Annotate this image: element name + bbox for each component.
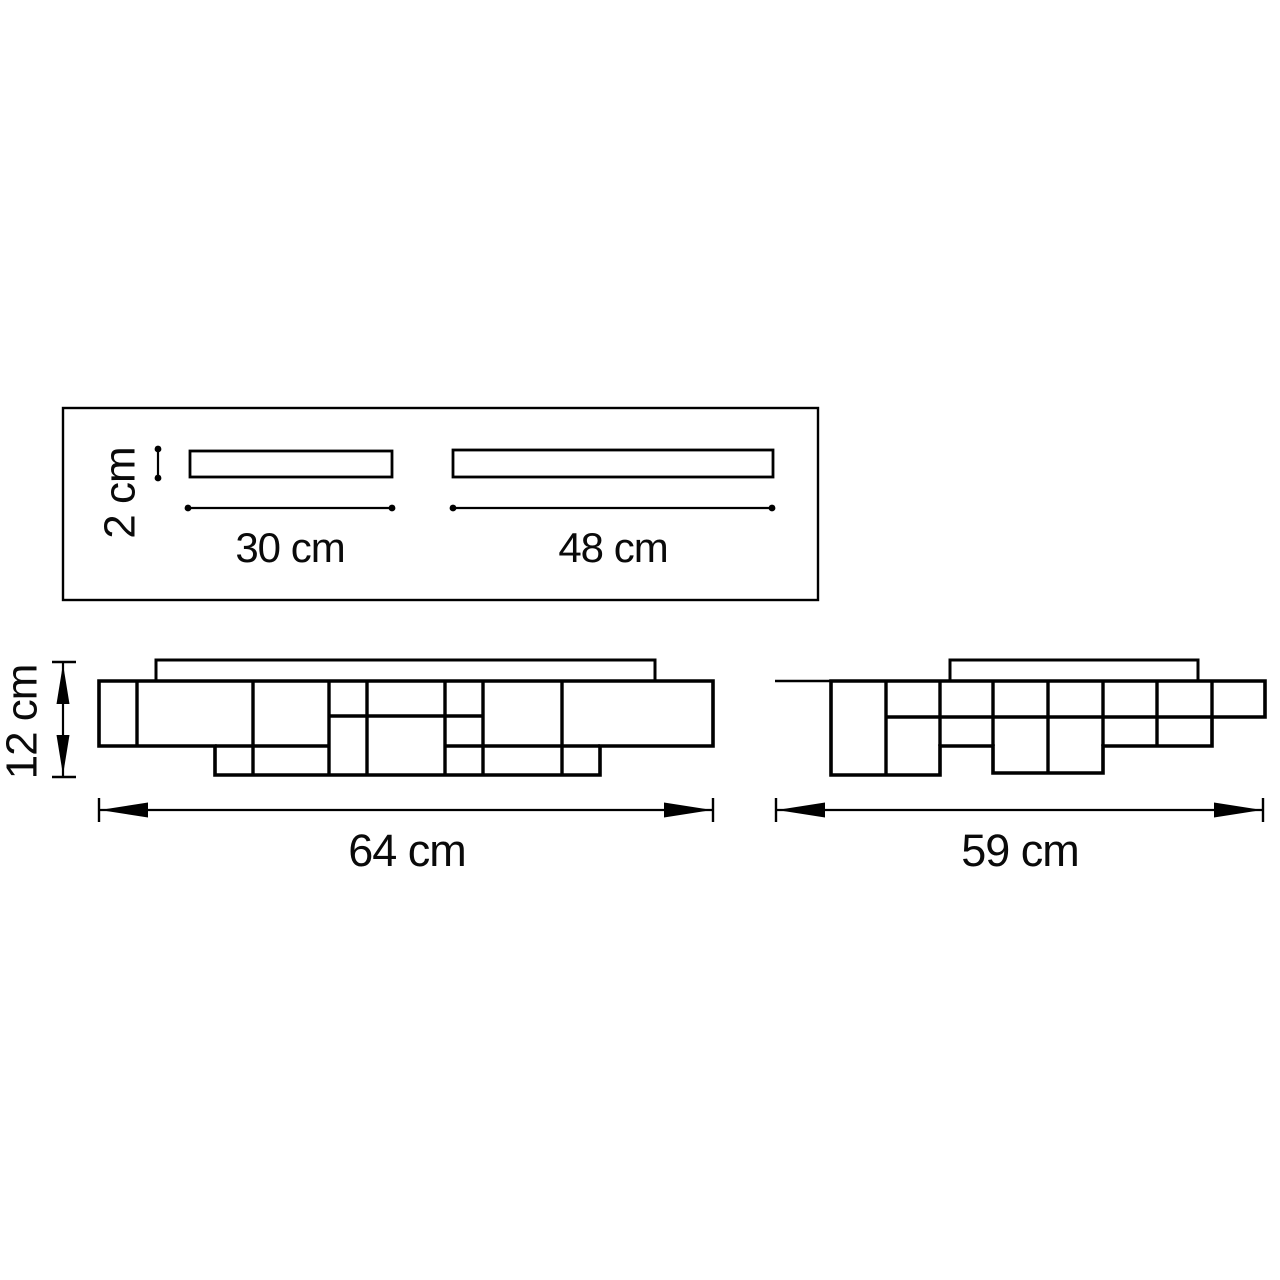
side-width-arrow-right bbox=[1214, 803, 1262, 818]
height-dim-arrow-up bbox=[57, 664, 70, 704]
tube-thickness-label: 2 cm bbox=[96, 447, 145, 538]
side-canopy-plate bbox=[950, 660, 1198, 681]
side-body-tile-lines bbox=[886, 681, 1212, 775]
front-canopy-plate bbox=[156, 660, 655, 681]
front-width-dimension bbox=[99, 798, 713, 822]
tube-30-dim-dot-left bbox=[185, 505, 192, 512]
front-body-outline bbox=[99, 681, 713, 775]
tube-30-dimension bbox=[185, 505, 396, 512]
tube-48-label: 48 cm bbox=[558, 524, 667, 571]
drawing-svg: 2 cm 30 cm 48 cm bbox=[0, 0, 1280, 1280]
top-view-panel: 2 cm 30 cm 48 cm bbox=[63, 408, 818, 600]
front-width-arrow-left bbox=[100, 803, 148, 818]
tube-48-dim-dot-left bbox=[450, 505, 457, 512]
tube-30-label: 30 cm bbox=[235, 524, 344, 571]
front-height-dimension bbox=[52, 662, 76, 777]
tube-30-dim-dot-right bbox=[389, 505, 396, 512]
front-width-arrow-right bbox=[664, 803, 712, 818]
tube-48-dimension bbox=[450, 505, 776, 512]
front-width-label: 64 cm bbox=[348, 825, 466, 876]
tube-thickness-dimension bbox=[155, 446, 162, 482]
thickness-dim-dot-bottom bbox=[155, 475, 162, 482]
side-width-label: 59 cm bbox=[961, 825, 1079, 876]
thickness-dim-dot-top bbox=[155, 446, 162, 453]
tube-30-bar bbox=[190, 451, 392, 477]
front-body-tile-lines bbox=[137, 681, 600, 775]
side-view: 59 cm bbox=[775, 660, 1265, 876]
height-dim-arrow-down bbox=[57, 735, 70, 775]
top-view-border bbox=[63, 408, 818, 600]
side-width-dimension bbox=[776, 798, 1263, 822]
front-view: 12 cm 64 cm bbox=[0, 660, 713, 876]
tube-48-dim-dot-right bbox=[769, 505, 776, 512]
side-width-arrow-left bbox=[777, 803, 825, 818]
dimension-drawing: 2 cm 30 cm 48 cm bbox=[0, 0, 1280, 1280]
front-height-label: 12 cm bbox=[0, 665, 47, 780]
tube-48-bar bbox=[453, 450, 773, 477]
